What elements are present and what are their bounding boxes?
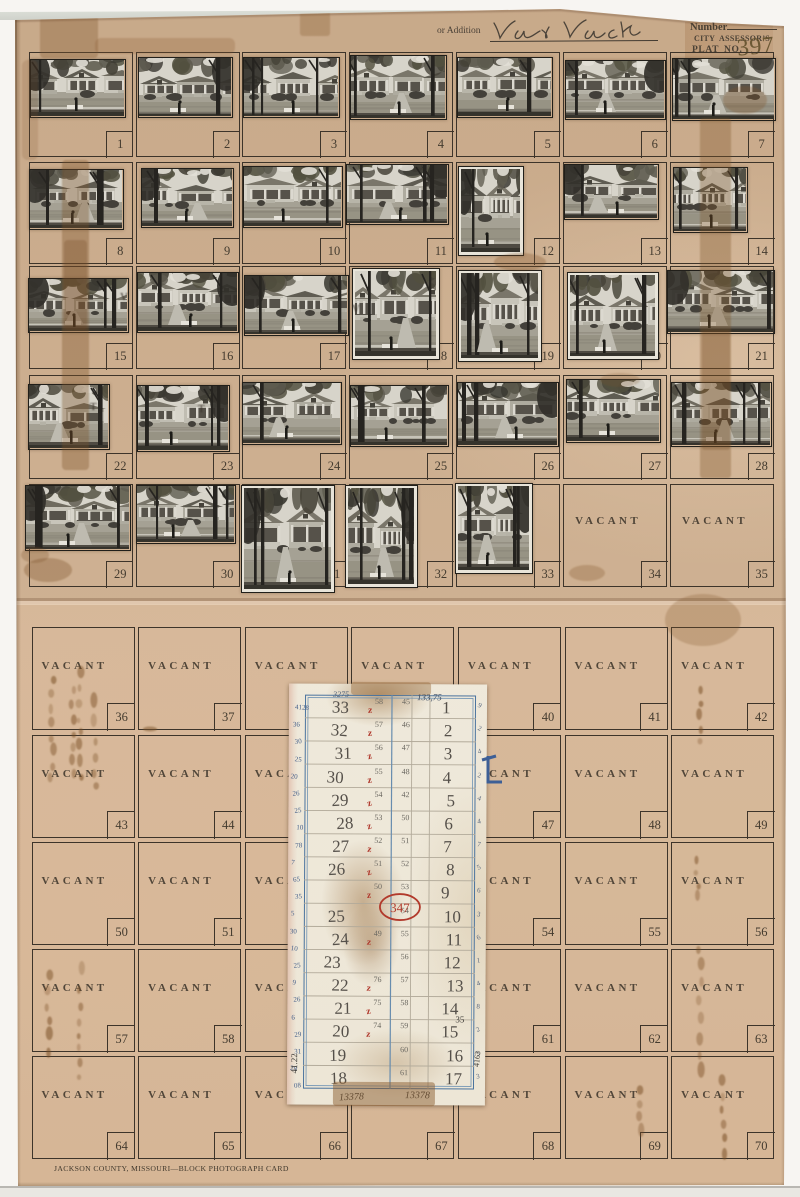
- svg-text:V: V: [120, 291, 128, 303]
- svg-text:T: T: [90, 401, 97, 413]
- svg-text:347: 347: [390, 900, 410, 915]
- svg-text:V: V: [352, 303, 360, 315]
- svg-text:T: T: [198, 403, 205, 415]
